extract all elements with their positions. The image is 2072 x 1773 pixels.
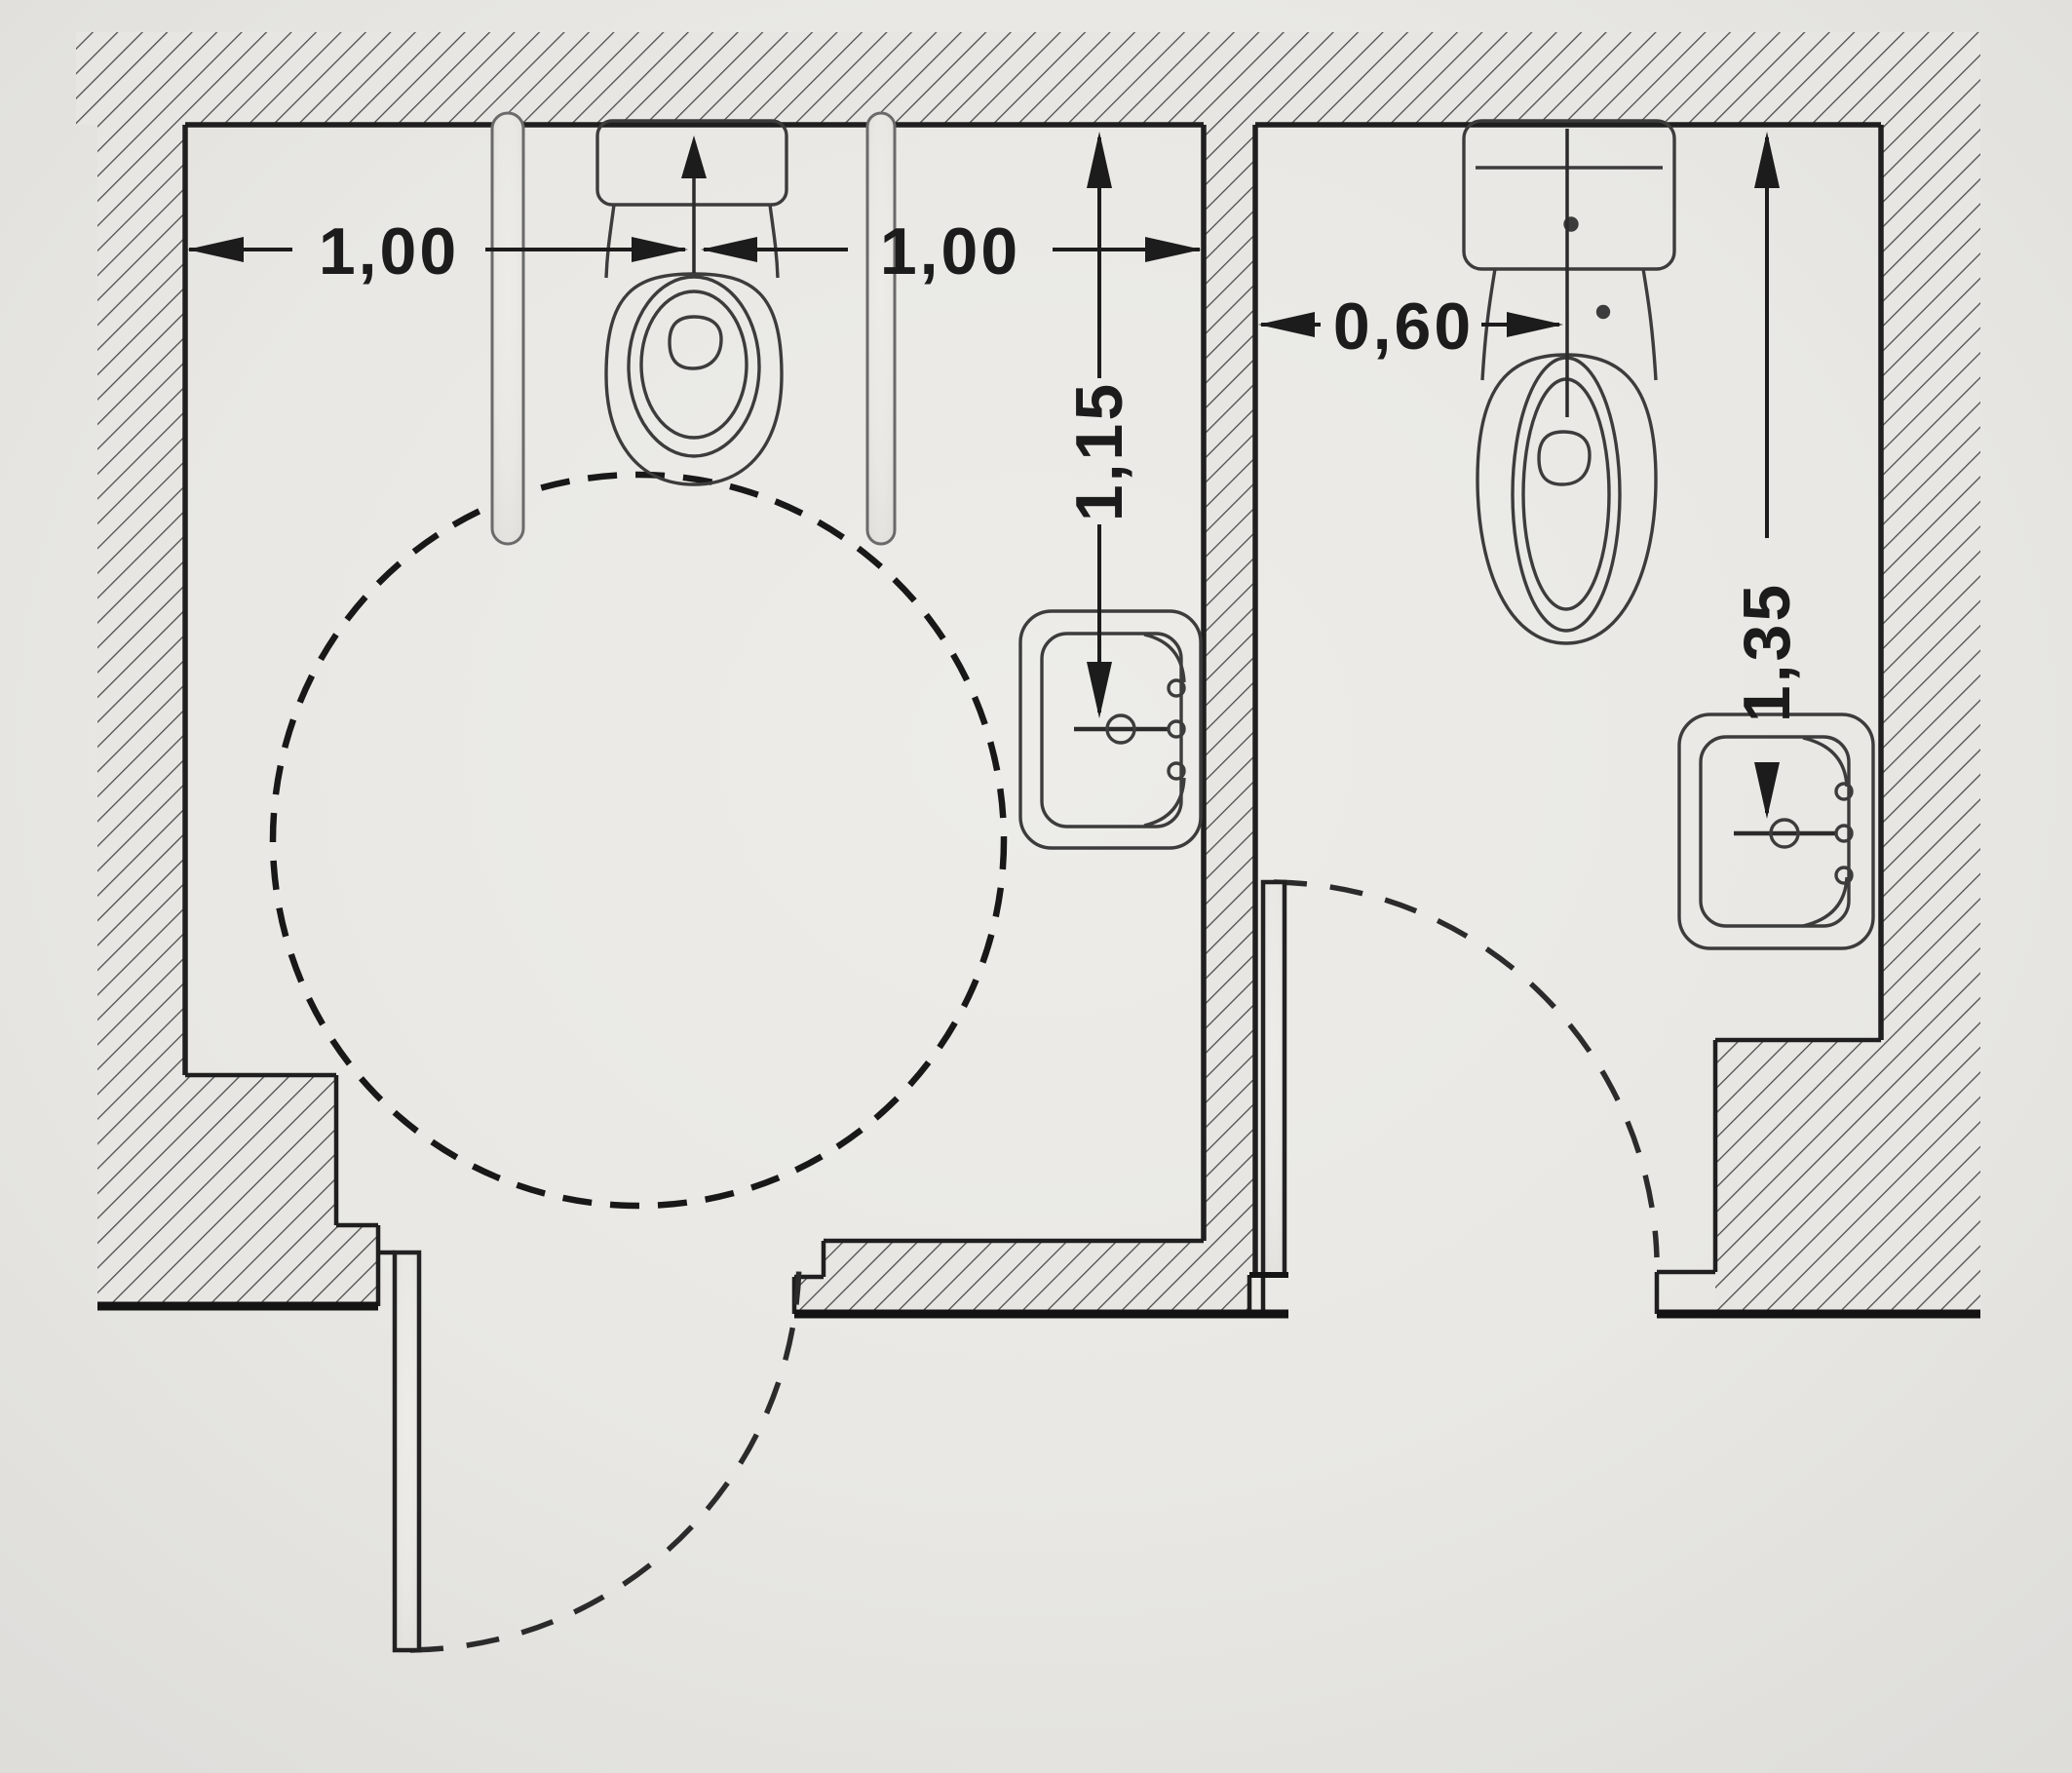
- dimension-label: 1,00: [880, 214, 1020, 289]
- dimension-label: 0,60: [1333, 289, 1474, 364]
- wall-top: [76, 32, 1980, 125]
- wall-bottom-right-block: [1715, 1040, 1980, 1314]
- grab-bar-right: [867, 113, 895, 544]
- wall-bottom-left-room: [794, 1241, 1204, 1314]
- floor-plan-drawing: 1,00 1,00 1,15 0,60 1,35: [0, 0, 2072, 1773]
- wall-middle: [1204, 125, 1255, 1314]
- dimension-label: 1,00: [319, 214, 459, 289]
- door-leaf: [1263, 882, 1285, 1275]
- seat-hinge-dot: [1598, 307, 1609, 318]
- dimension-label: 1,15: [1062, 381, 1136, 521]
- dimension-label: 1,35: [1730, 582, 1804, 722]
- wall-right: [1881, 32, 1980, 1040]
- grab-bar-left: [492, 113, 523, 544]
- photographed-floor-plan-page: 1,00 1,00 1,15 0,60 1,35: [0, 0, 2072, 1773]
- paper-background: [0, 0, 2072, 1773]
- door-leaf: [395, 1253, 419, 1650]
